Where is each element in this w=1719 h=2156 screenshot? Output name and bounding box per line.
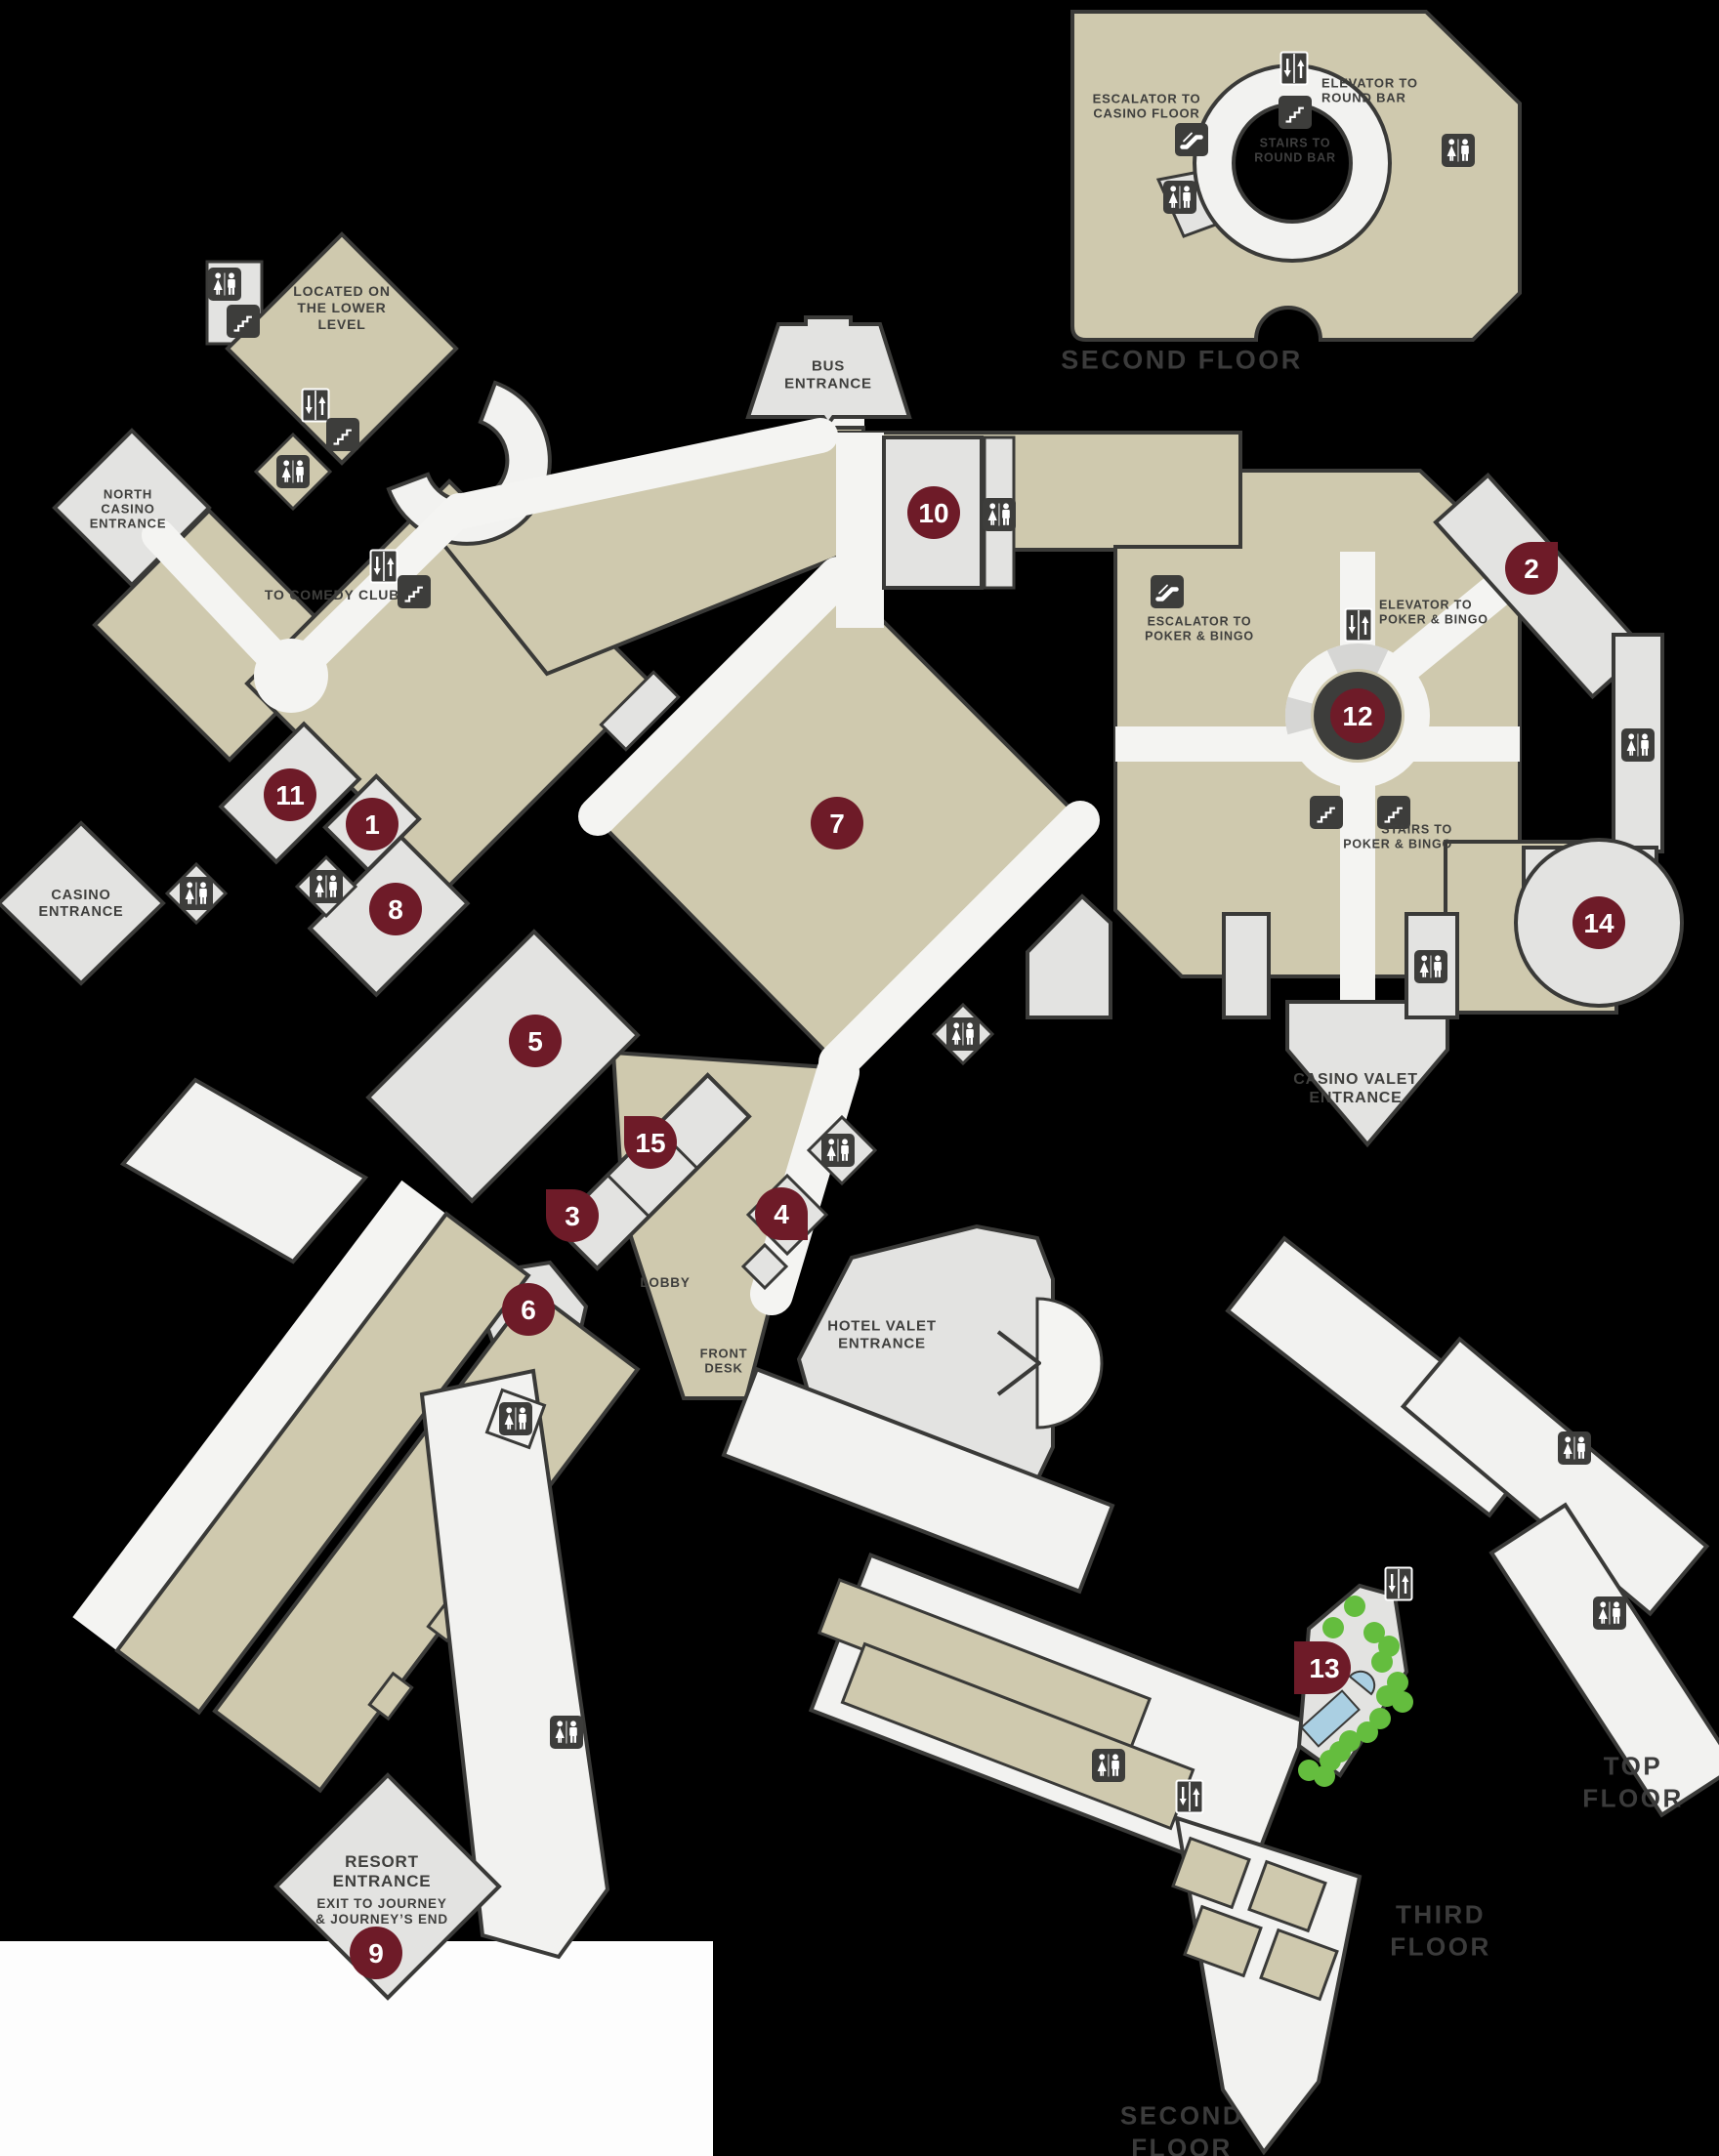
map-label: ESCALATOR TOPOKER & BINGO xyxy=(1145,615,1254,643)
marker-2[interactable]: 2 xyxy=(1505,542,1558,595)
tree-icon xyxy=(1322,1617,1344,1638)
marker-8[interactable]: 8 xyxy=(369,883,422,935)
stairs-icon xyxy=(398,575,431,608)
map-label: LOBBY xyxy=(640,1275,690,1290)
marker-6[interactable]: 6 xyxy=(502,1283,555,1336)
map-label: EXIT TO JOURNEY& JOURNEY’S END xyxy=(315,1896,448,1927)
resort-floor-map: 123456789101112131415 ESCALATOR TOCASINO… xyxy=(0,0,1719,2156)
restroom-icon xyxy=(1558,1431,1591,1465)
map-label: STAIRS TOROUND BAR xyxy=(1254,137,1336,165)
map-label: ESCALATOR TOCASINO FLOOR xyxy=(1093,92,1201,121)
map-label: CASINOENTRANCE xyxy=(39,888,124,920)
marker-4[interactable]: 4 xyxy=(755,1187,808,1240)
escalator-icon xyxy=(1151,575,1184,608)
marker-11[interactable]: 11 xyxy=(264,768,316,821)
map-label: TO COMEDY CLUB xyxy=(265,587,399,602)
restroom-icon xyxy=(1163,181,1196,214)
escalator-icon xyxy=(1175,123,1208,156)
stairs-icon xyxy=(326,418,359,451)
map-label: SECOND FLOOR xyxy=(1061,346,1303,375)
stairs-icon xyxy=(1279,96,1312,129)
marker-number: 12 xyxy=(1342,701,1372,731)
marker-number: 4 xyxy=(774,1199,789,1229)
marker-number: 2 xyxy=(1524,554,1539,584)
tree-icon xyxy=(1392,1691,1413,1713)
marker-number: 14 xyxy=(1583,908,1614,938)
marker-number: 11 xyxy=(275,780,305,810)
restroom-icon xyxy=(1593,1596,1626,1630)
marker-number: 1 xyxy=(364,809,380,840)
restroom-icon xyxy=(946,1017,980,1051)
floor-map-stage: 123456789101112131415 ESCALATOR TOCASINO… xyxy=(0,0,1719,2156)
tree-icon xyxy=(1344,1596,1365,1617)
marker-number: 3 xyxy=(565,1201,580,1231)
marker-14[interactable]: 14 xyxy=(1572,896,1625,949)
restroom-icon xyxy=(821,1134,855,1167)
marker-5[interactable]: 5 xyxy=(509,1015,562,1067)
map-label: ELEVATOR TOROUND BAR xyxy=(1321,76,1418,105)
stairs-icon xyxy=(227,305,260,338)
elevator-icon xyxy=(1386,1568,1412,1600)
marker-3[interactable]: 3 xyxy=(546,1189,599,1242)
restroom-icon xyxy=(983,498,1016,531)
restroom-icon xyxy=(1442,134,1475,167)
map-label: RESORTENTRANCE xyxy=(333,1852,432,1890)
marker-10[interactable]: 10 xyxy=(907,486,960,539)
tree-icon xyxy=(1371,1651,1393,1673)
marker-number: 7 xyxy=(829,808,845,839)
marker-number: 9 xyxy=(368,1938,384,1969)
marker-number: 15 xyxy=(635,1128,665,1158)
elevator-icon xyxy=(371,551,398,583)
restroom-icon xyxy=(550,1716,583,1749)
marker-13[interactable]: 13 xyxy=(1294,1641,1351,1694)
restroom-icon xyxy=(310,870,343,903)
tree-icon xyxy=(1314,1765,1335,1787)
elevator-icon xyxy=(1346,609,1372,642)
restroom-icon xyxy=(180,877,213,910)
restroom-icon xyxy=(208,268,241,301)
map-label: SECONDFLOOR xyxy=(1120,2100,1243,2156)
lower-white-area xyxy=(0,1941,713,2156)
elevator-icon xyxy=(1281,53,1308,85)
map-label: ELEVATOR TOPOKER & BINGO xyxy=(1379,599,1488,627)
marker-9[interactable]: 9 xyxy=(350,1927,402,1979)
stairs-icon xyxy=(1310,796,1343,829)
restroom-icon xyxy=(276,455,310,488)
map-label: FRONTDESK xyxy=(700,1347,748,1376)
elevator-icon xyxy=(1177,1781,1203,1813)
restroom-icon xyxy=(499,1402,532,1435)
marker-7[interactable]: 7 xyxy=(811,797,863,850)
restroom-icon xyxy=(1092,1749,1125,1782)
marker-number: 6 xyxy=(521,1295,536,1325)
marker-12[interactable]: 12 xyxy=(1314,672,1402,760)
restroom-icon xyxy=(1414,950,1447,983)
marker-number: 8 xyxy=(388,894,403,925)
marker-15[interactable]: 15 xyxy=(624,1116,677,1169)
restroom-icon xyxy=(1621,728,1655,762)
elevator-icon xyxy=(303,390,329,422)
marker-number: 5 xyxy=(527,1026,543,1057)
map-label: HOTEL VALETENTRANCE xyxy=(827,1317,937,1351)
marker-number: 13 xyxy=(1309,1653,1339,1683)
marker-1[interactable]: 1 xyxy=(346,798,398,850)
marker-number: 10 xyxy=(918,498,948,528)
